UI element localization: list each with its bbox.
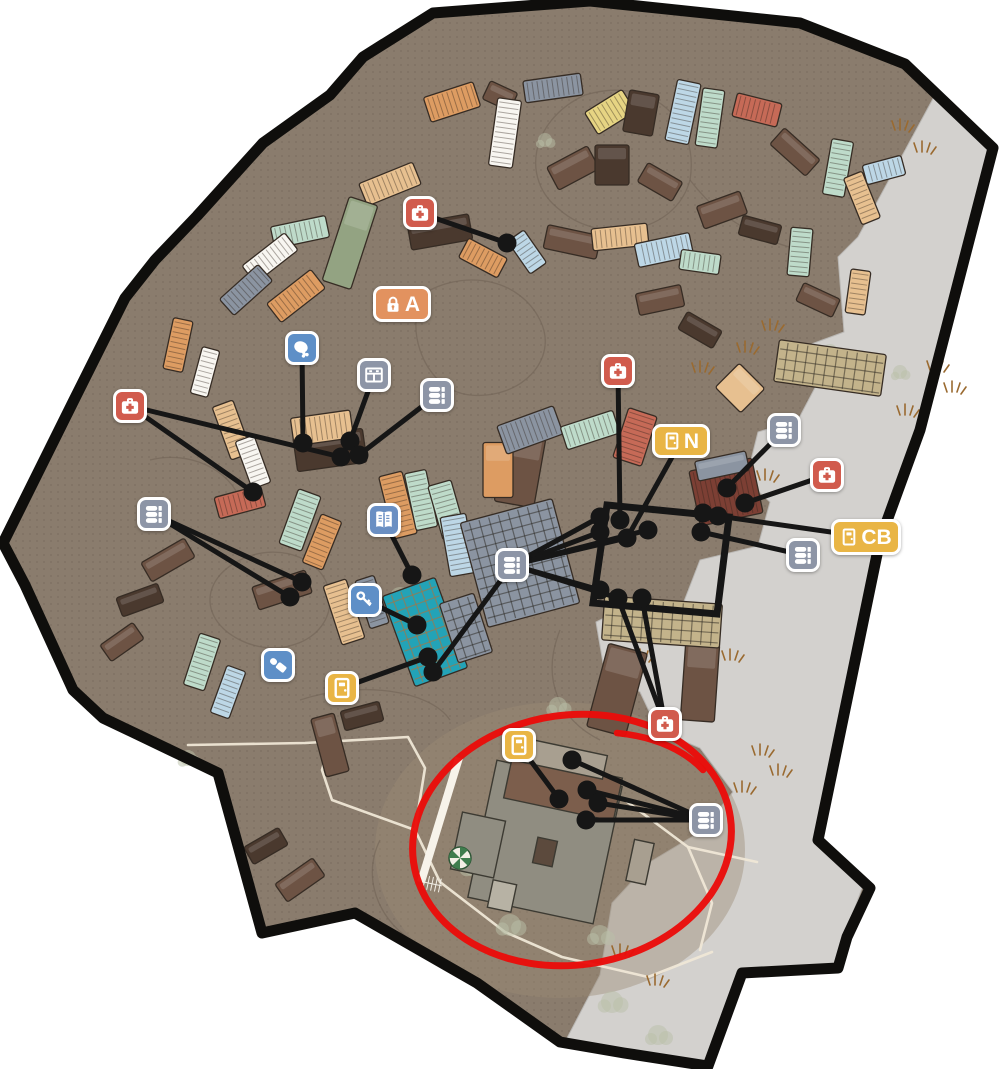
marker-medkit — [648, 707, 682, 741]
door-icon — [329, 675, 355, 701]
lock-icon — [382, 293, 404, 315]
junkyard-loot-map: ANCB — [0, 0, 1000, 1069]
book-icon — [371, 507, 397, 533]
ammo-icon — [790, 542, 816, 568]
ammo-icon — [424, 382, 450, 408]
chicken-icon — [289, 335, 315, 361]
door-icon — [661, 430, 683, 452]
marker-chicken — [285, 331, 319, 365]
marker-key — [348, 583, 382, 617]
marker-book — [367, 503, 401, 537]
marker-ammo — [420, 378, 454, 412]
ammo-icon — [141, 501, 167, 527]
marker-ammo — [495, 548, 529, 582]
badge-letter: A — [405, 294, 420, 315]
marker-door-badge: N — [652, 424, 710, 458]
ammo-icon — [693, 807, 719, 833]
marker-medkit — [810, 458, 844, 492]
suppressor-icon — [265, 652, 291, 678]
ammo-icon — [499, 552, 525, 578]
medkit-icon — [605, 358, 631, 384]
badge-letter: N — [684, 431, 699, 452]
badge-letter: CB — [861, 527, 891, 548]
marker-suppressor — [261, 648, 295, 682]
door-icon — [506, 732, 532, 758]
marker-ammo — [689, 803, 723, 837]
cabinet-icon — [361, 362, 387, 388]
marker-door — [325, 671, 359, 705]
markers-layer: ANCB — [0, 0, 1000, 1069]
marker-ammo — [786, 538, 820, 572]
medkit-icon — [814, 462, 840, 488]
marker-lock-badge: A — [373, 286, 431, 322]
marker-cabinet — [357, 358, 391, 392]
marker-door-badge: CB — [831, 519, 901, 555]
marker-medkit — [601, 354, 635, 388]
ammo-icon — [771, 417, 797, 443]
marker-ammo — [767, 413, 801, 447]
marker-medkit — [113, 389, 147, 423]
medkit-icon — [652, 711, 678, 737]
marker-medkit — [403, 196, 437, 230]
key-icon — [352, 587, 378, 613]
medkit-icon — [117, 393, 143, 419]
marker-door — [502, 728, 536, 762]
door-icon — [838, 526, 860, 548]
marker-ammo — [137, 497, 171, 531]
medkit-icon — [407, 200, 433, 226]
